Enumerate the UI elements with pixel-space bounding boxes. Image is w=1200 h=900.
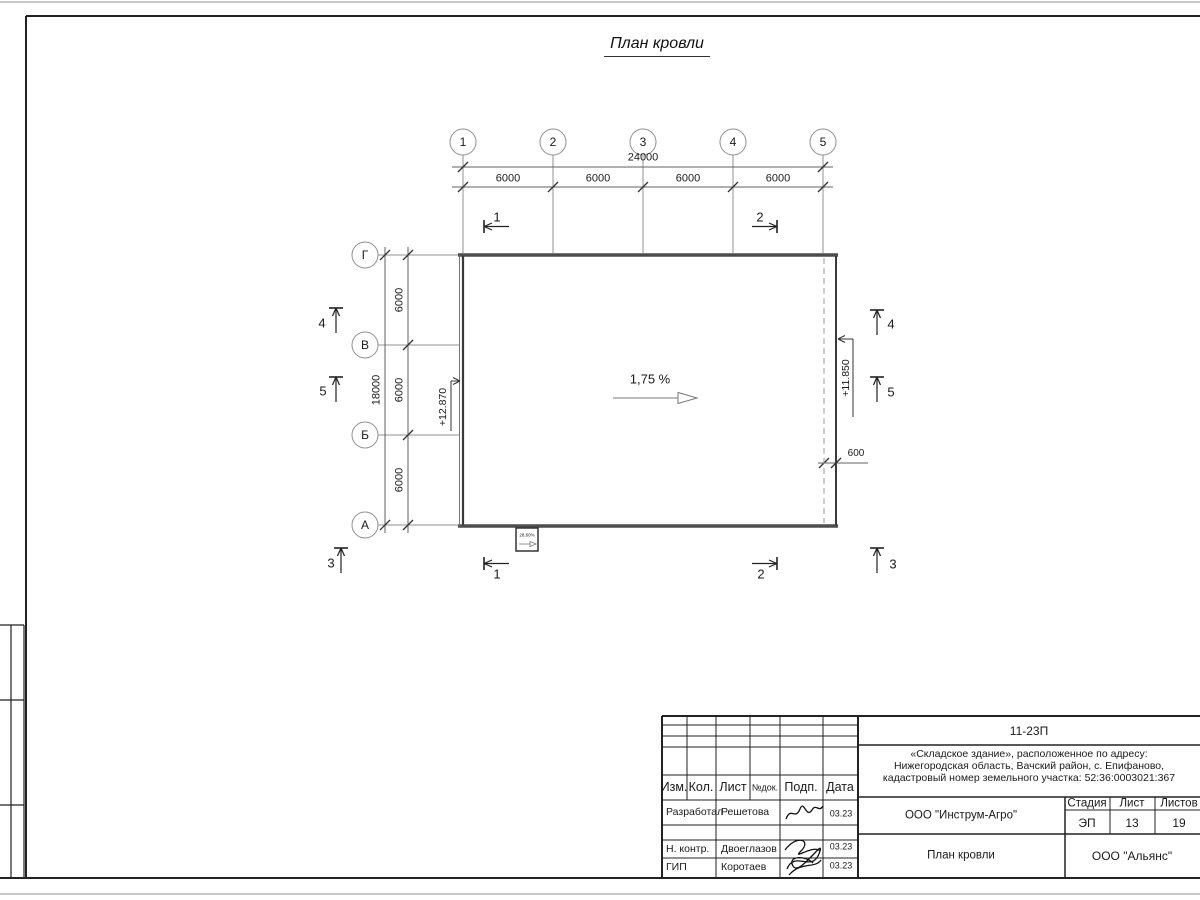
building-outline xyxy=(458,255,838,526)
grid-axes xyxy=(352,129,836,538)
titleblock-col-izm: Изм. xyxy=(661,781,688,794)
titleblock-row3-role: ГИП xyxy=(666,862,687,873)
section-label-3-left: 3 xyxy=(327,557,334,570)
titleblock-row2-date: 03.23 xyxy=(830,843,853,852)
axis-label-a: А xyxy=(361,519,369,531)
titleblock-row3-date: 03.23 xyxy=(830,862,853,871)
titleblock-sheet-value: 13 xyxy=(1125,817,1138,829)
titleblock-row1-name: Решетова xyxy=(721,807,769,818)
titleblock-col-data: Дата xyxy=(826,781,854,794)
dim-top-total: 24000 xyxy=(628,153,659,164)
drawing-sheet: План кровли 1 2 3 4 5 Г В Б А 24000 6000… xyxy=(0,0,1200,900)
section-label-1-bottom: 1 xyxy=(493,568,500,581)
dimension-ticks xyxy=(380,162,841,530)
titleblock-row2-role: Н. контр. xyxy=(666,844,709,855)
axis-label-v: В xyxy=(361,339,369,351)
titleblock-project-line1: «Складское здание», расположенное по адр… xyxy=(910,749,1147,760)
left-strip xyxy=(0,625,24,878)
axis-label-g: Г xyxy=(362,249,369,261)
dim-top-seg-1: 6000 xyxy=(496,174,520,185)
titleblock-org2: ООО "Альянс" xyxy=(1092,850,1172,862)
canopy-slope-label: 28,60% xyxy=(519,534,534,539)
dimension-lines xyxy=(385,167,868,533)
titleblock-org: ООО "Инструм-Агро" xyxy=(905,810,1017,822)
axis-label-b: Б xyxy=(361,429,369,441)
section-label-1-top: 1 xyxy=(493,211,500,224)
section-label-4-left: 4 xyxy=(318,317,325,330)
titleblock-stage-value: ЭП xyxy=(1078,817,1095,829)
titleblock-sheets-header: Листов xyxy=(1160,798,1197,810)
dim-left-seg-2: 6000 xyxy=(395,378,406,402)
elevation-right-label: +11.850 xyxy=(841,359,852,396)
dim-left-total: 18000 xyxy=(372,375,383,406)
signature-reshetova xyxy=(786,806,823,819)
canopy-box xyxy=(516,528,538,551)
titleblock-col-kol: Кол. xyxy=(689,781,714,794)
titleblock-row1-date: 03.23 xyxy=(830,810,853,819)
titleblock-project-line2: Нижегородская область, Вачский район, с.… xyxy=(894,761,1164,772)
titleblock-sheet-header: Лист xyxy=(1120,798,1145,810)
roof-slope-label: 1,75 % xyxy=(630,373,670,386)
dim-overhang: 600 xyxy=(848,449,865,459)
slope-arrow xyxy=(613,393,697,404)
dim-left-seg-3: 6000 xyxy=(395,468,406,492)
section-label-5-left: 5 xyxy=(319,385,326,398)
axis-label-2: 2 xyxy=(550,136,557,148)
titleblock-row2-name: Двоеглазов xyxy=(721,844,777,855)
dim-top-seg-3: 6000 xyxy=(676,174,700,185)
titleblock-project-line3: кадастровый номер земельного участка: 52… xyxy=(883,773,1175,784)
axis-label-3: 3 xyxy=(640,136,647,148)
titleblock-row1-role: Разработал xyxy=(666,807,723,818)
titleblock-col-podp: Подп. xyxy=(784,781,817,794)
dim-left-seg-1: 6000 xyxy=(395,288,406,312)
section-label-2-bottom: 2 xyxy=(757,568,764,581)
section-label-3-right: 3 xyxy=(889,558,896,571)
titleblock-sheets-value: 19 xyxy=(1172,817,1185,829)
titleblock-stage-header: Стадия xyxy=(1067,798,1106,810)
elevation-left-label: +12.870 xyxy=(438,388,449,426)
section-label-4-right: 4 xyxy=(887,318,894,331)
section-label-2-top: 2 xyxy=(756,211,763,224)
page-title: План кровли xyxy=(604,35,710,57)
dim-top-seg-2: 6000 xyxy=(586,174,610,185)
titleblock-col-list: Лист xyxy=(719,781,746,794)
titleblock-doc-title: План кровли xyxy=(927,850,995,862)
section-label-5-right: 5 xyxy=(887,386,894,399)
axis-label-1: 1 xyxy=(460,136,467,148)
axis-label-4: 4 xyxy=(730,136,737,148)
titleblock-code: 11-23П xyxy=(1010,725,1048,737)
titleblock-row3-name: Коротаев xyxy=(721,862,766,873)
axis-label-5: 5 xyxy=(820,136,827,148)
dim-top-seg-4: 6000 xyxy=(766,174,790,185)
titleblock-col-ndoc: №док. xyxy=(752,784,778,793)
